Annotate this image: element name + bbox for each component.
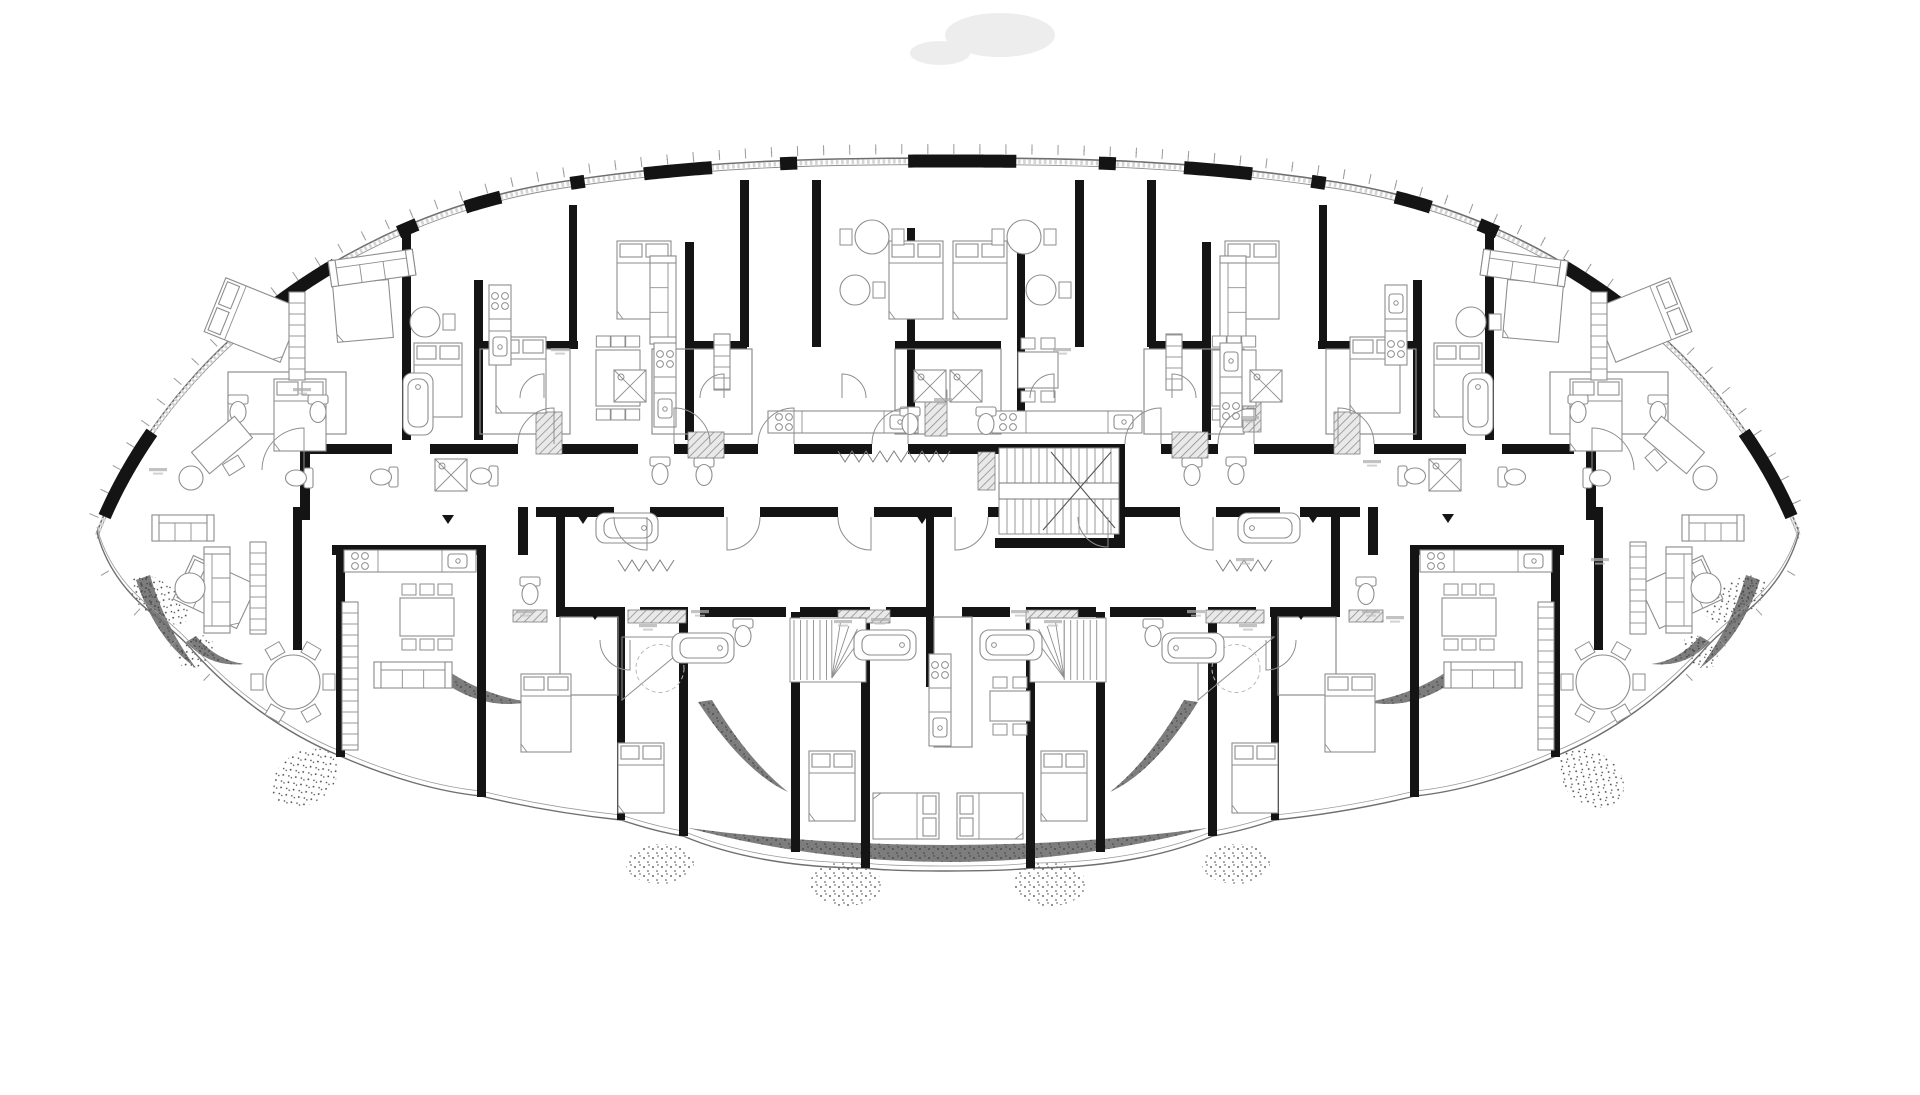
facade-pier — [644, 168, 712, 174]
bathtub — [854, 630, 916, 660]
micro-label — [293, 388, 311, 391]
service-shaft — [1172, 432, 1208, 458]
tick-mark — [174, 378, 182, 384]
wall-segment — [760, 507, 838, 517]
kitchen-counter — [768, 411, 918, 433]
entry-arrow — [442, 515, 454, 524]
door-swing — [1180, 517, 1213, 550]
pouf — [175, 573, 205, 603]
toilet — [308, 395, 328, 423]
kitchen-counter — [344, 550, 476, 572]
toilet — [650, 457, 670, 485]
door-swing — [842, 374, 866, 398]
shower — [435, 459, 467, 491]
tick-mark — [1687, 348, 1694, 355]
toilet — [1182, 458, 1202, 486]
facade-pier — [465, 197, 501, 207]
micro-label — [1386, 616, 1404, 619]
micro-label — [1591, 558, 1609, 561]
facade-pier — [780, 163, 797, 164]
wall-segment — [474, 280, 483, 440]
entry-arrows — [442, 514, 1454, 620]
service-shaft — [688, 432, 724, 458]
door-swing — [955, 517, 988, 550]
wall-segment — [1502, 444, 1574, 454]
tick-mark — [134, 609, 140, 616]
wardrobe — [1591, 292, 1607, 380]
tick-mark — [434, 200, 437, 209]
bed — [889, 241, 943, 319]
micro-label — [1236, 558, 1254, 561]
bathtub — [1162, 633, 1224, 663]
sofa — [1444, 662, 1522, 688]
wall-segment — [700, 607, 786, 617]
planting-stipple — [1202, 844, 1270, 884]
tick-mark — [641, 157, 642, 167]
stair-landing — [999, 483, 1119, 499]
toilet — [228, 395, 248, 423]
wardrobe — [289, 292, 305, 380]
facade-pier — [1395, 197, 1431, 207]
wall-segment — [1254, 444, 1338, 454]
facade-pier — [1744, 432, 1791, 516]
bathtub — [1238, 513, 1300, 543]
bed — [618, 743, 664, 813]
wardrobe — [342, 602, 358, 750]
tick-mark — [1266, 158, 1267, 168]
facade-pier — [105, 432, 152, 516]
tick-mark — [1162, 149, 1163, 159]
micro-label — [1011, 610, 1029, 613]
tick-mark — [1753, 430, 1761, 436]
toilet — [976, 407, 996, 435]
tick-mark — [1756, 609, 1762, 616]
sofa — [152, 515, 214, 541]
toilet — [1498, 467, 1526, 487]
wall-segment — [895, 341, 1001, 349]
round-table — [840, 275, 885, 305]
toilet — [471, 466, 499, 486]
micro-label — [1044, 620, 1062, 623]
tick-mark — [1787, 571, 1795, 576]
toilet — [286, 468, 314, 488]
bathtub — [596, 513, 658, 543]
tick-mark — [204, 674, 210, 680]
pouf — [1693, 466, 1717, 490]
wardrobe — [1166, 334, 1182, 390]
toilet — [1398, 466, 1426, 486]
kitchen-counter — [1385, 285, 1407, 365]
toilet — [1583, 468, 1611, 488]
bed — [809, 751, 855, 821]
bed — [1041, 751, 1087, 821]
round-table — [251, 642, 335, 723]
tick-mark — [745, 148, 746, 158]
entry-arrow — [1307, 514, 1319, 523]
wall-segment — [1110, 607, 1196, 617]
wall-segment — [1374, 444, 1466, 454]
floor-plan-page — [0, 0, 1920, 1095]
wall-segment — [518, 507, 528, 555]
toilet — [1226, 457, 1246, 485]
tick-mark — [1686, 674, 1692, 680]
tick-mark — [338, 244, 343, 253]
micro-label — [1362, 610, 1380, 613]
bed — [1325, 674, 1375, 752]
pouf — [1691, 573, 1721, 603]
service-shaft — [536, 412, 562, 454]
tick-mark — [1420, 187, 1423, 197]
kitchen-counter — [654, 343, 676, 427]
door-swing — [727, 517, 760, 550]
micro-label — [149, 468, 167, 471]
wall-segment — [874, 507, 952, 517]
facade-pier — [1099, 163, 1116, 164]
tick-mark — [1563, 250, 1568, 259]
sofa — [650, 256, 676, 344]
pouf — [179, 466, 203, 490]
micro-label — [551, 348, 569, 351]
zigzag-mark — [618, 560, 674, 571]
round-table — [410, 307, 455, 337]
toilet — [900, 407, 920, 435]
wall-segment — [556, 607, 620, 617]
tick-mark — [485, 184, 488, 194]
wall-segment — [477, 545, 486, 797]
wall-segment — [650, 507, 724, 517]
kitchen-counter — [489, 285, 511, 365]
wall-segment — [556, 517, 565, 607]
tick-mark — [1722, 387, 1730, 393]
shower — [1429, 459, 1461, 491]
micro-label — [1187, 610, 1205, 613]
door-swing — [838, 517, 871, 550]
kitchen-counter — [1220, 343, 1242, 427]
shower — [950, 370, 982, 402]
wall-segment — [1413, 280, 1422, 440]
tick-mark — [1517, 225, 1521, 234]
micro-label — [639, 624, 657, 627]
tick-mark — [693, 152, 694, 162]
tick-mark — [537, 172, 539, 182]
micro-label — [1241, 416, 1259, 419]
background-smudge — [910, 13, 1055, 65]
wall-segment — [1410, 545, 1419, 797]
toilet — [1356, 577, 1376, 605]
micro-label — [934, 398, 952, 401]
wall-segment — [1331, 517, 1340, 607]
door-layer — [262, 374, 1634, 670]
facade-pier — [571, 181, 585, 183]
sofa — [204, 547, 230, 633]
bed — [521, 674, 571, 752]
dining-table — [990, 677, 1030, 735]
shower — [614, 370, 646, 402]
tick-mark — [1469, 204, 1473, 213]
tick-mark — [1214, 153, 1215, 163]
toilet — [371, 467, 399, 487]
toilet — [520, 577, 540, 605]
facade-pier — [1184, 168, 1252, 174]
wall-segment — [1319, 205, 1327, 341]
toilet — [1648, 395, 1668, 423]
sofa — [1220, 256, 1246, 344]
wall-segment — [554, 444, 638, 454]
wall-segment — [740, 180, 749, 347]
tick-mark — [1369, 174, 1371, 184]
shaft-layer — [513, 390, 1383, 623]
tick-mark — [1780, 476, 1789, 481]
tick-mark — [113, 465, 122, 470]
sofa — [1682, 515, 1744, 541]
tick-mark — [293, 272, 299, 280]
kitchen-counter — [1420, 550, 1552, 572]
micro-label — [834, 620, 852, 623]
tick-mark — [589, 164, 590, 174]
structural-walls-layer — [293, 180, 1603, 868]
wall-segment — [794, 444, 872, 454]
service-shaft — [978, 452, 995, 490]
micro-label — [1053, 348, 1071, 351]
sofa — [374, 662, 452, 688]
door-swing — [600, 640, 630, 670]
bathtub — [672, 633, 734, 663]
dining-table — [1018, 338, 1058, 402]
bed — [957, 793, 1023, 839]
bathtub — [1463, 373, 1493, 435]
tick-mark — [1317, 165, 1318, 175]
toilet — [694, 458, 714, 486]
facade-inner-line — [97, 165, 1799, 539]
kitchen-counter — [929, 654, 951, 746]
tick-mark — [1607, 279, 1613, 287]
micro-label — [1363, 460, 1381, 463]
micro-label — [691, 610, 709, 613]
tick-mark — [101, 571, 109, 576]
wall-segment — [1075, 180, 1084, 347]
tick-mark — [210, 339, 217, 346]
bathtub — [403, 373, 433, 435]
bed — [953, 241, 1007, 319]
tick-mark — [141, 420, 149, 426]
bathtub — [980, 630, 1042, 660]
wall-segment — [1594, 507, 1603, 650]
wall-segment — [430, 444, 518, 454]
tick-mark — [385, 220, 389, 229]
micro-label — [871, 618, 889, 621]
toilet — [1568, 395, 1588, 423]
sofa — [1666, 547, 1692, 633]
service-shaft — [628, 610, 686, 623]
wardrobe — [714, 334, 730, 390]
toilet — [733, 619, 753, 647]
round-table — [1456, 307, 1501, 337]
dining-table — [400, 584, 454, 650]
tick-mark — [89, 514, 98, 518]
service-shaft — [1206, 610, 1264, 623]
micro-label — [1239, 624, 1257, 627]
wall-segment — [1147, 180, 1156, 347]
wall-segment — [886, 607, 934, 617]
kitchen-counter — [992, 411, 1142, 433]
bed — [1232, 743, 1278, 813]
wall-segment — [569, 205, 577, 341]
wardrobe — [250, 542, 266, 634]
entry-arrow — [1442, 514, 1454, 523]
floor-plan-drawing — [0, 0, 1920, 1095]
shower — [914, 370, 946, 402]
bed — [873, 793, 939, 839]
wall-segment — [962, 607, 1010, 617]
wall-segment — [1368, 507, 1378, 555]
entry-arrow — [577, 515, 589, 524]
shower — [1250, 370, 1282, 402]
toilet — [1143, 619, 1163, 647]
facade-pier — [1311, 181, 1325, 183]
furniture-layer — [152, 220, 1744, 839]
round-table — [1561, 642, 1645, 723]
dining-table — [1442, 584, 1496, 650]
wardrobe — [1538, 602, 1554, 750]
door-swing — [1266, 640, 1296, 670]
wardrobe — [1630, 542, 1646, 634]
wall-segment — [293, 507, 302, 650]
round-table — [1026, 275, 1071, 305]
wall-segment — [812, 180, 821, 347]
micro-label — [516, 610, 534, 613]
planting-stipple — [626, 844, 694, 884]
zigzag-mark — [1216, 560, 1272, 571]
